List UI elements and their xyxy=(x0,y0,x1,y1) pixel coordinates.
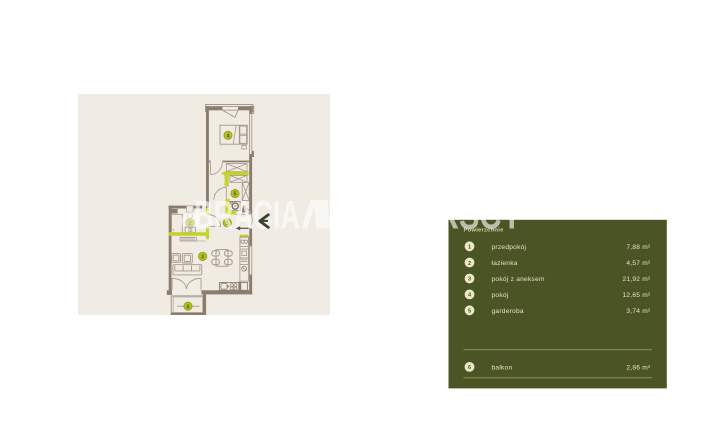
svg-text:2,86 m²: 2,86 m² xyxy=(626,365,651,372)
svg-text:SADURSCY: SADURSCY xyxy=(350,194,522,238)
svg-text:6: 6 xyxy=(468,365,471,371)
svg-text:5: 5 xyxy=(468,308,471,314)
svg-text:21,92 m²: 21,92 m² xyxy=(622,276,651,283)
svg-text:3,74 m²: 3,74 m² xyxy=(626,308,651,315)
svg-text:garderoba: garderoba xyxy=(492,308,524,315)
svg-text:przedpokój: przedpokój xyxy=(492,244,527,251)
svg-text:4,57 m²: 4,57 m² xyxy=(626,260,651,267)
svg-text:7,88 m²: 7,88 m² xyxy=(626,244,651,251)
svg-text:3: 3 xyxy=(468,277,471,283)
svg-text:12,65 m²: 12,65 m² xyxy=(622,292,651,299)
svg-text:balkon: balkon xyxy=(492,365,513,372)
svg-text:3: 3 xyxy=(201,255,204,261)
svg-text:BRACIA: BRACIA xyxy=(194,194,300,238)
svg-text:6: 6 xyxy=(186,304,189,310)
svg-text:2: 2 xyxy=(468,261,471,267)
svg-text:łazienka: łazienka xyxy=(492,260,518,267)
svg-text:k.: k. xyxy=(173,228,176,232)
svg-text:pokój z aneksem: pokój z aneksem xyxy=(492,276,545,283)
svg-text:pokój: pokój xyxy=(492,292,509,299)
svg-text:1: 1 xyxy=(468,244,471,250)
